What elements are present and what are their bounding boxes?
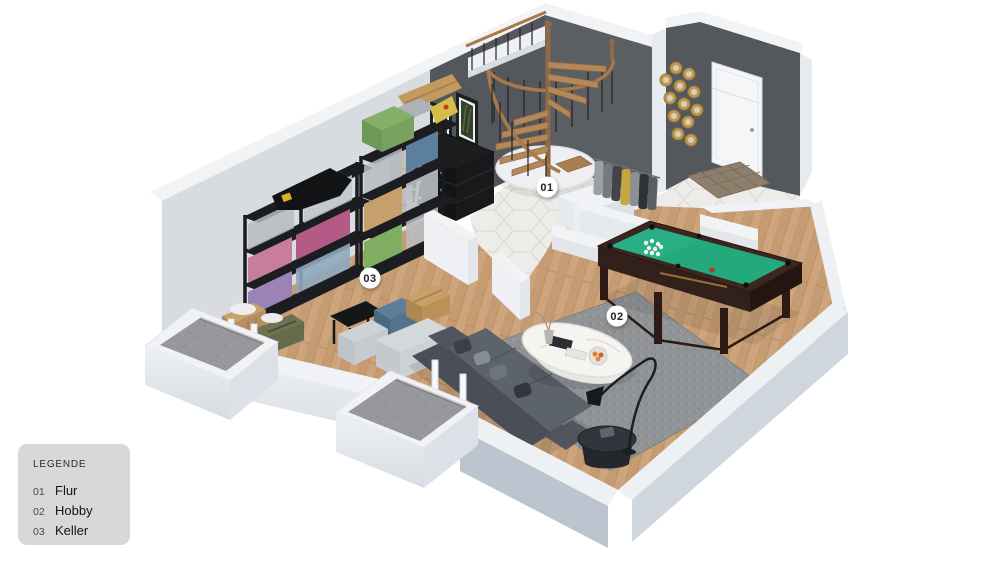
marker-hobby-label: 02	[610, 311, 623, 323]
door-handle	[750, 128, 754, 132]
legend-item-number: 03	[33, 526, 55, 538]
legend-panel: LEGENDE 01 Flur 02 Hobby 03 Keller	[18, 444, 130, 545]
legend-title: LEGENDE	[33, 459, 130, 470]
red-ball	[709, 267, 714, 272]
floorplan-page: 01 02 03 LEGENDE 01 Flur 02 Hobby 03 Kel…	[0, 0, 1000, 562]
floor-plan-rendering: 01 02 03	[0, 0, 1000, 562]
legend-item-label: Flur	[55, 483, 77, 498]
legend-item-number: 02	[33, 506, 55, 518]
legend-item-label: Keller	[55, 523, 88, 538]
fruit-bowl	[589, 347, 607, 365]
legend-item-flur: 01 Flur	[33, 483, 130, 498]
marker-flur-label: 01	[540, 182, 553, 194]
marker-keller-label: 03	[363, 273, 376, 285]
legend-item-keller: 03 Keller	[33, 523, 130, 538]
legend-item-hobby: 02 Hobby	[33, 503, 130, 518]
legend-item-number: 01	[33, 486, 55, 498]
legend-item-label: Hobby	[55, 503, 93, 518]
side-table	[578, 426, 636, 469]
